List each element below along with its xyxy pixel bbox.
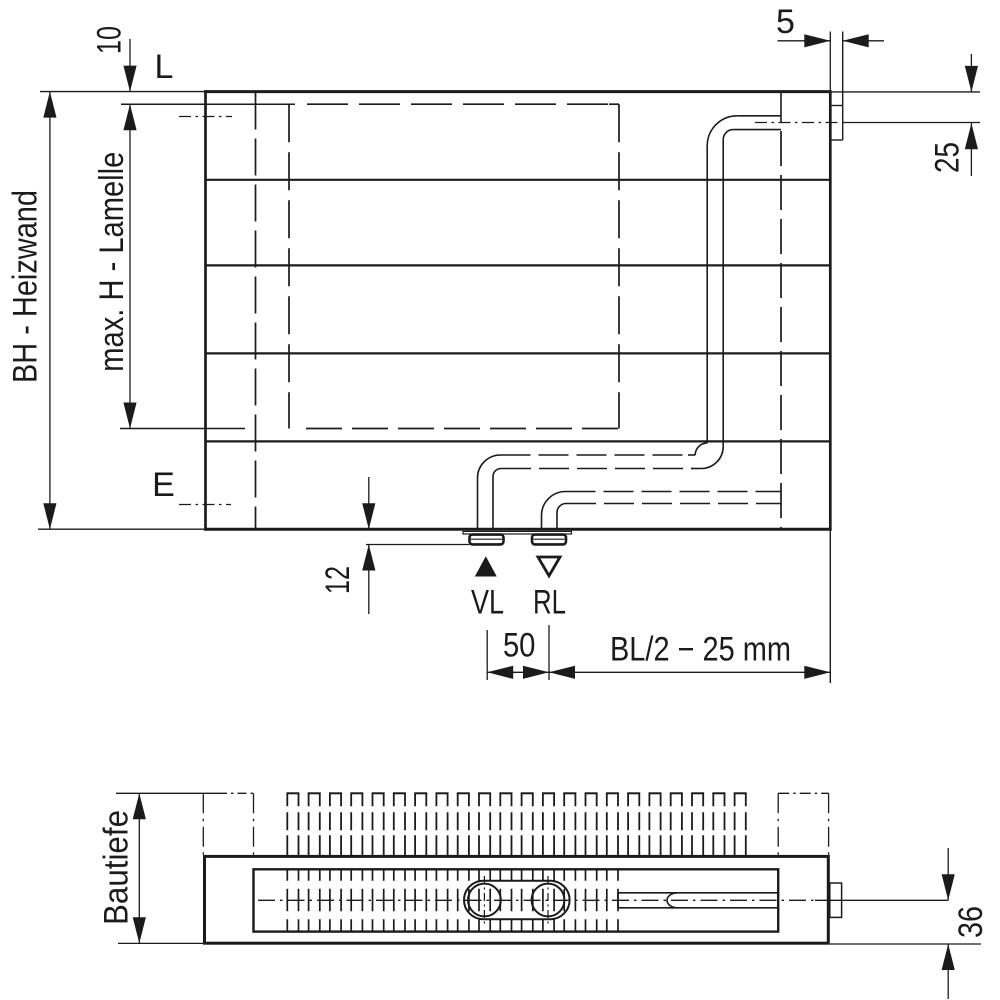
svg-text:12: 12: [319, 566, 357, 594]
svg-text:10: 10: [91, 26, 129, 54]
svg-text:BH - Heizwand: BH - Heizwand: [7, 190, 45, 383]
svg-text:RL: RL: [533, 584, 566, 622]
svg-text:25: 25: [929, 142, 967, 173]
svg-text:VL: VL: [471, 584, 504, 622]
svg-text:BL/2 − 25 mm: BL/2 − 25 mm: [610, 631, 791, 669]
svg-text:E: E: [152, 466, 175, 504]
svg-text:max. H - Lamelle: max. H - Lamelle: [93, 152, 131, 372]
svg-text:5: 5: [776, 3, 795, 41]
svg-text:Bautiefe: Bautiefe: [98, 810, 136, 925]
svg-text:L: L: [155, 48, 174, 86]
svg-text:50: 50: [503, 627, 536, 665]
svg-text:36: 36: [952, 906, 990, 938]
